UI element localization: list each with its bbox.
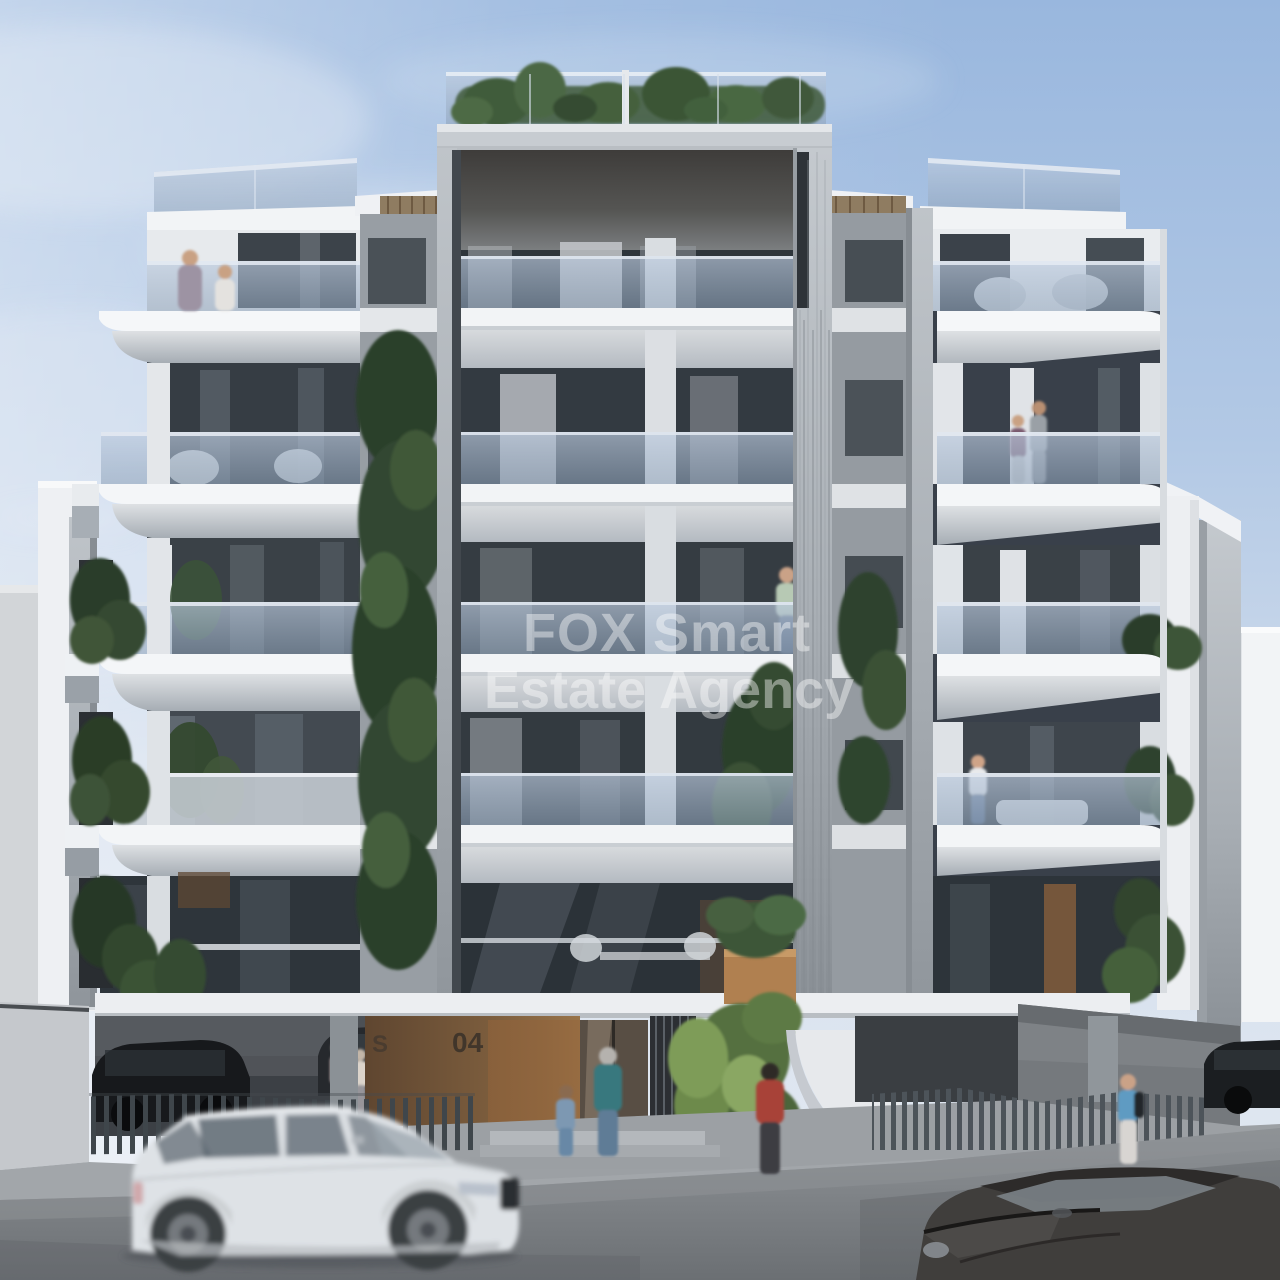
svg-text:04: 04 <box>452 1027 484 1058</box>
svg-text:S: S <box>372 1031 388 1058</box>
svg-text:FOX Smart: FOX Smart <box>523 603 811 663</box>
svg-text:Estate Agency: Estate Agency <box>484 660 854 720</box>
